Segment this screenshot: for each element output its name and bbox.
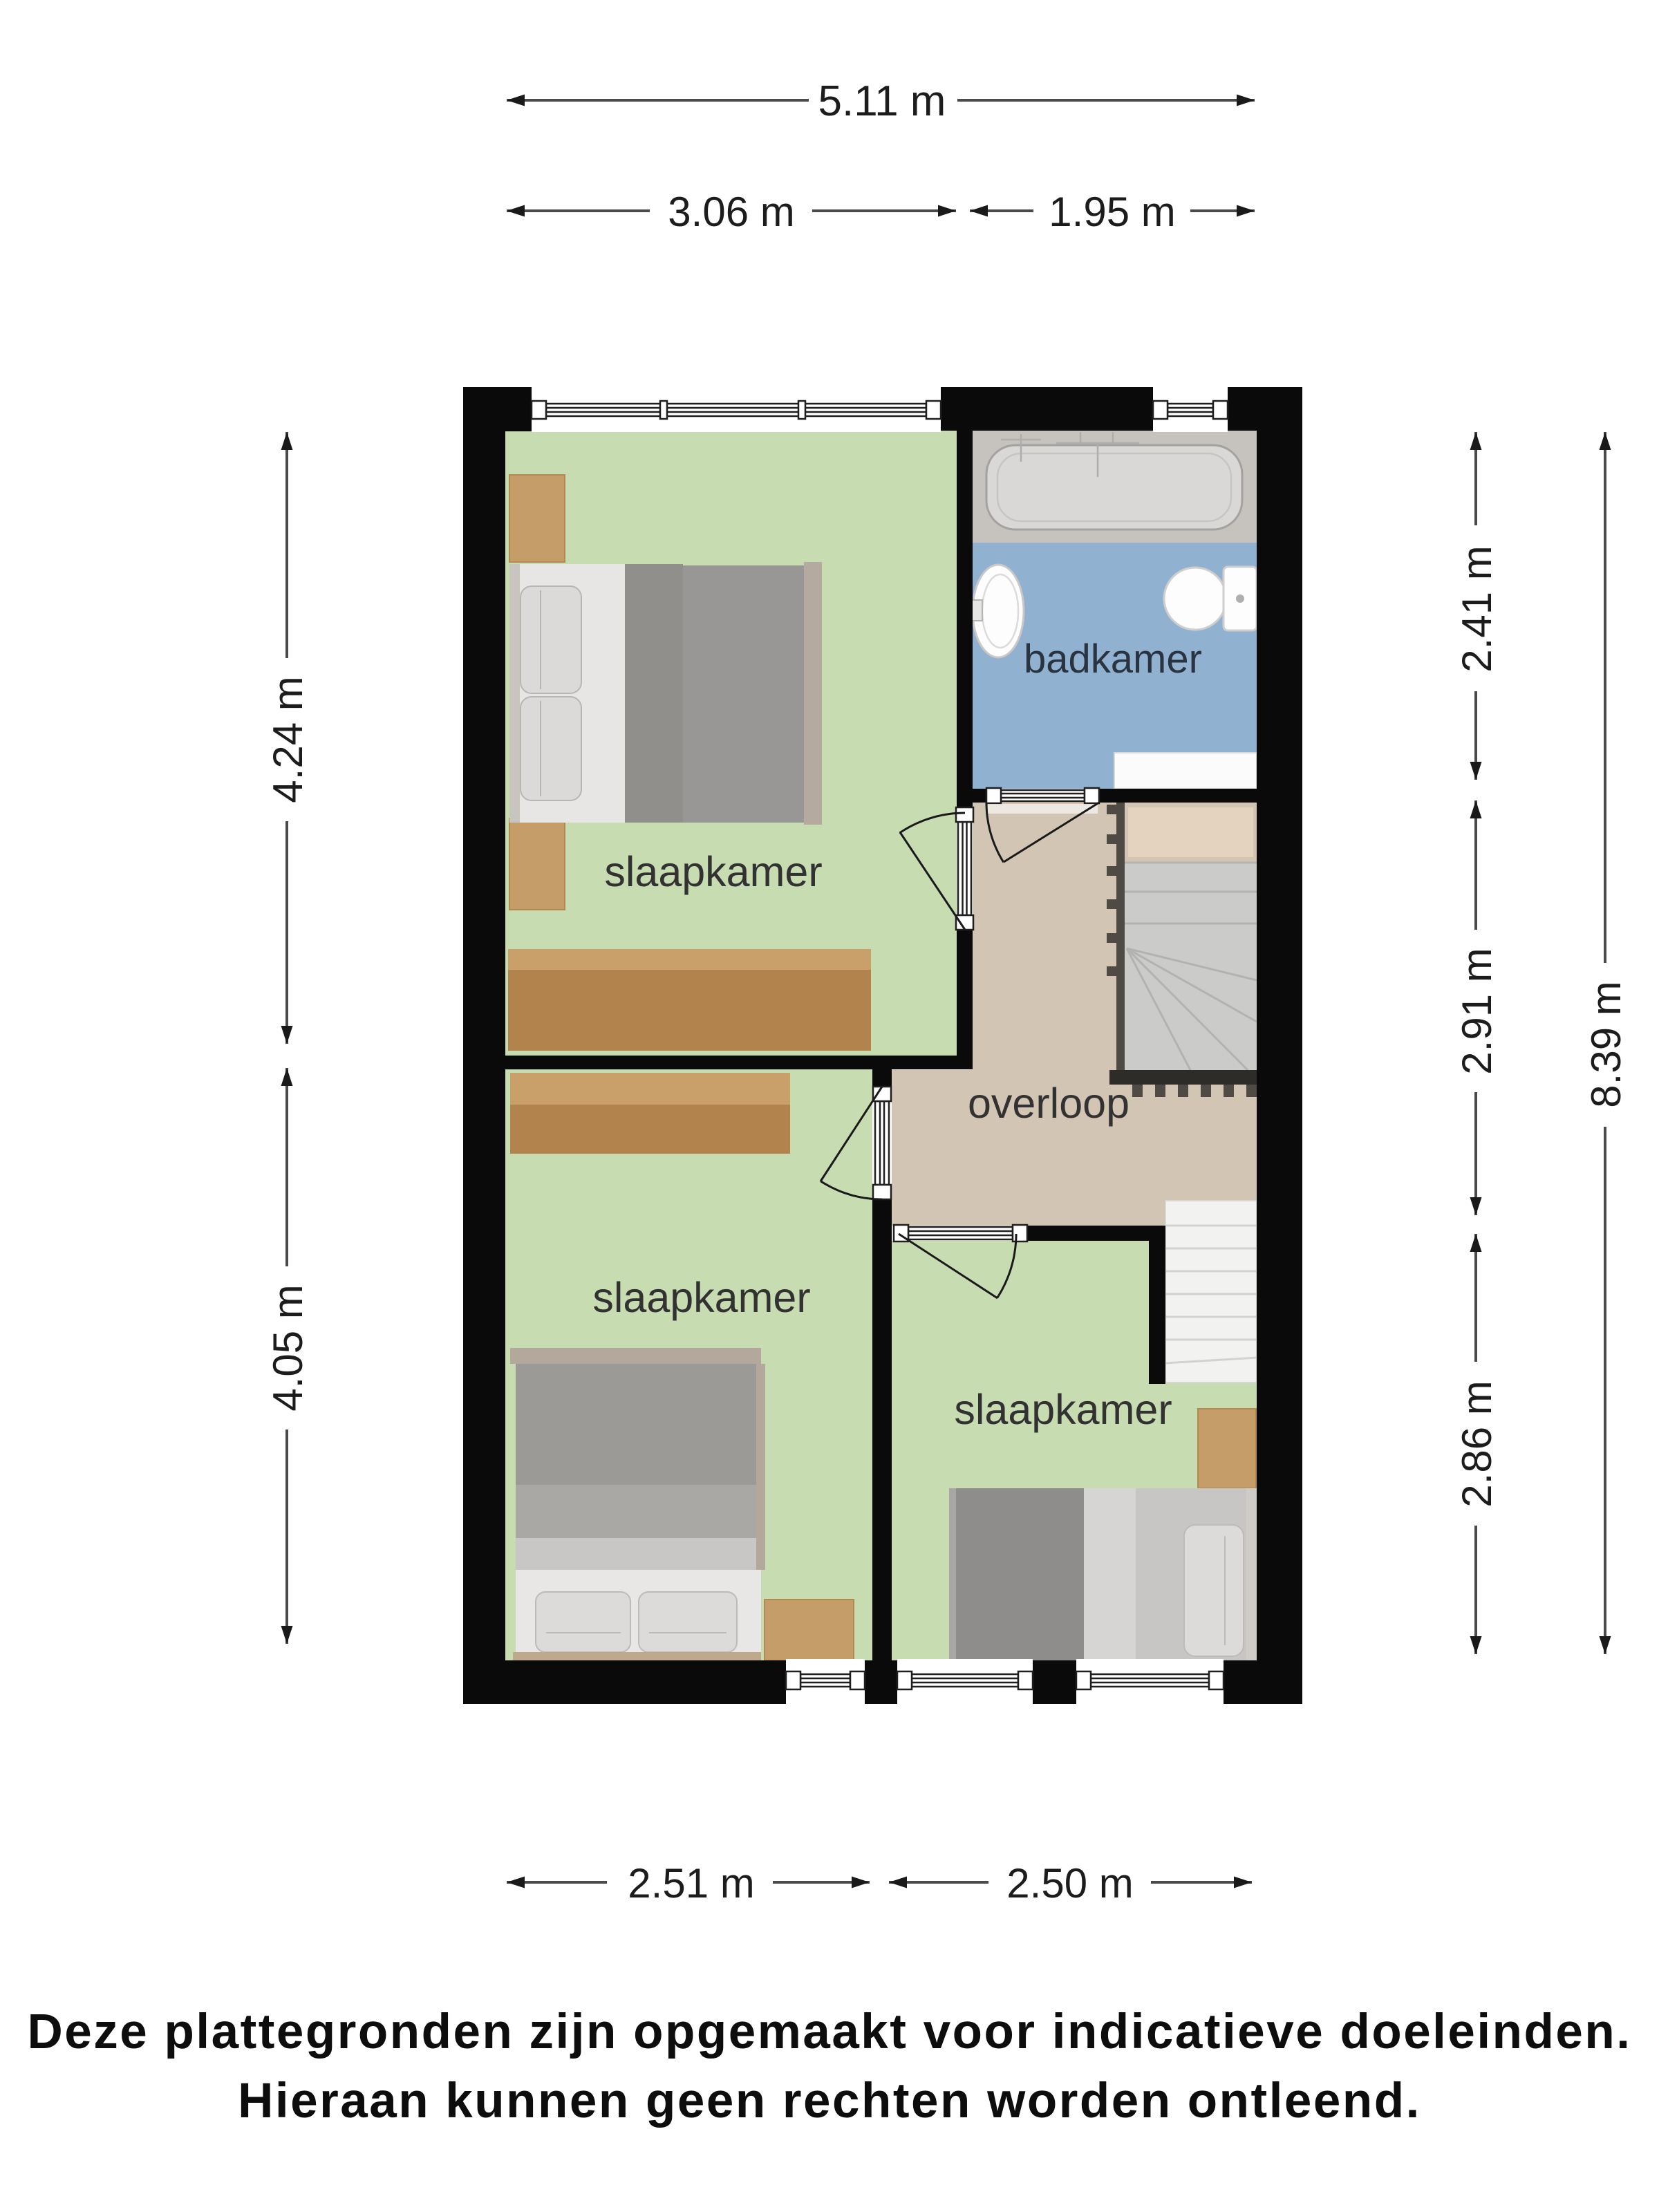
svg-text:2.51 m: 2.51 m [628, 1860, 754, 1906]
svg-text:2.86 m: 2.86 m [1454, 1380, 1500, 1507]
svg-text:2.91 m: 2.91 m [1454, 948, 1500, 1074]
svg-text:1.95 m: 1.95 m [1049, 189, 1175, 235]
svg-text:5.11 m: 5.11 m [818, 77, 946, 125]
svg-text:slaapkamer: slaapkamer [954, 1386, 1172, 1433]
svg-text:slaapkamer: slaapkamer [604, 848, 822, 895]
svg-text:slaapkamer: slaapkamer [592, 1274, 810, 1321]
svg-text:overloop: overloop [968, 1080, 1130, 1127]
svg-text:4.24 m: 4.24 m [265, 676, 311, 803]
svg-text:2.50 m: 2.50 m [1006, 1860, 1133, 1906]
svg-text:4.05 m: 4.05 m [265, 1284, 311, 1411]
svg-text:Hieraan kunnen geen rechten wo: Hieraan kunnen geen rechten worden ontle… [238, 2074, 1421, 2128]
svg-text:Deze plattegronden zijn opgema: Deze plattegronden zijn opgemaakt voor i… [28, 2005, 1632, 2059]
svg-text:2.41 m: 2.41 m [1454, 545, 1500, 672]
svg-text:8.39 m: 8.39 m [1583, 981, 1629, 1107]
svg-text:3.06 m: 3.06 m [668, 189, 794, 235]
svg-text:badkamer: badkamer [1024, 637, 1202, 682]
